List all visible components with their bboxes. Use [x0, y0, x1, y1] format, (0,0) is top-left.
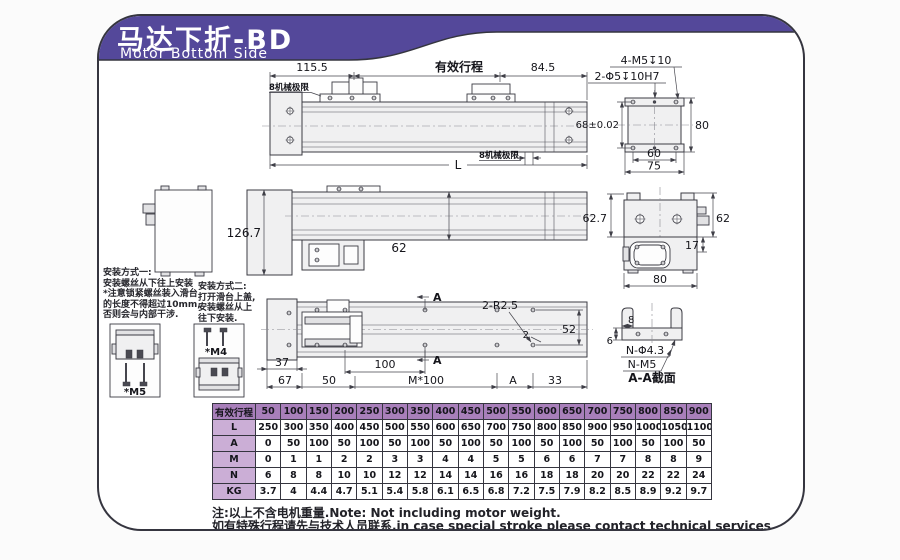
table-cell: 50 [534, 436, 559, 452]
table-header-cell: 250 [357, 404, 382, 420]
table-cell: 10 [331, 468, 356, 484]
table-cell: 16 [509, 468, 534, 484]
table-cell: 4.7 [331, 484, 356, 500]
section-caption: A-A截面 [628, 370, 676, 385]
dim-126-7: 126.7 [227, 226, 261, 240]
table-row-label: A [213, 436, 256, 452]
table-cell: 16 [483, 468, 508, 484]
table-cell: 50 [635, 436, 660, 452]
hole-callout: N-Φ4.3 [626, 344, 664, 357]
table-header-cell: 有效行程 [213, 404, 256, 420]
table-header-cell: 900 [686, 404, 711, 420]
table-cell: 5.1 [357, 484, 382, 500]
table-cell: 7 [610, 452, 635, 468]
table-header-cell: 450 [458, 404, 483, 420]
table-header-cell: 700 [585, 404, 610, 420]
install-method-1-title: 安装方式一: [103, 268, 201, 279]
table-cell: 14 [433, 468, 458, 484]
table-cell: 1050 [661, 420, 686, 436]
table-cell: 4 [281, 484, 306, 500]
install-method-1-text: 安装方式一: 安装螺丝从下往上安装 *注意锁紧螺丝装入滑台 的长度不得超过10m… [103, 268, 201, 321]
table-cell: 22 [661, 468, 686, 484]
table-cell: 9.7 [686, 484, 711, 500]
table-cell: 50 [382, 436, 407, 452]
table-cell: 4.4 [306, 484, 331, 500]
thread-callout-section: N-M5 [628, 358, 657, 371]
install-method-2-text: 安装方式二: 打开滑台上盖, 安装螺丝从上 往下安装. [198, 282, 255, 324]
mech-limit-label-bottom: 8机械极限 [479, 150, 519, 161]
page: { "banner": { "title": "马达下折-BD", "subti… [0, 0, 900, 560]
dim-37: 37 [275, 356, 289, 369]
dim-62-end: 62 [716, 212, 730, 225]
table-cell: 6.5 [458, 484, 483, 500]
table-row: L250300350400450500550600650700750800850… [213, 420, 712, 436]
section-arrow-label-bottom: A [433, 354, 442, 367]
table-cell: 100 [610, 436, 635, 452]
table-header-cell: 600 [534, 404, 559, 420]
corner-radius-callout: 2-R2.5 [482, 299, 518, 312]
table-row-label: L [213, 420, 256, 436]
section-arrow-label-top: A [433, 291, 442, 304]
dim-62-7: 62.7 [583, 212, 608, 225]
install-text-line: 打开滑台上盖, [198, 293, 255, 304]
table-cell: 8 [306, 468, 331, 484]
table-cell: 9 [686, 452, 711, 468]
table-cell: 950 [610, 420, 635, 436]
table-cell: 100 [661, 436, 686, 452]
table-row-label: M [213, 452, 256, 468]
table-cell: 7.2 [509, 484, 534, 500]
table-cell: 6 [559, 452, 584, 468]
table-cell: 6.8 [483, 484, 508, 500]
table-cell: 7.9 [559, 484, 584, 500]
table-row: KG3.744.44.75.15.45.86.16.56.87.27.57.98… [213, 484, 712, 500]
motor-end-view [143, 186, 212, 276]
table-cell: 3 [407, 452, 432, 468]
table-cell: 50 [483, 436, 508, 452]
section-aa-view: 8 6 N-Φ4.3 N-M5 A-A截面 [607, 303, 682, 385]
table-cell: 10 [357, 468, 382, 484]
table-header-cell: 750 [610, 404, 635, 420]
dim-2: 2 [523, 330, 529, 341]
table-cell: 0 [256, 436, 281, 452]
table-header-cell: 550 [509, 404, 534, 420]
mech-limit-label-top: 8机械极限 [269, 82, 309, 93]
table-cell: 500 [382, 420, 407, 436]
install-text-line: 否则会与内部干涉. [103, 310, 201, 321]
table-cell: 9.2 [661, 484, 686, 500]
table-cell: 700 [483, 420, 508, 436]
table-row-label: N [213, 468, 256, 484]
table-cell: 100 [458, 436, 483, 452]
table-cell: 12 [407, 468, 432, 484]
dim-84-5: 84.5 [531, 61, 556, 74]
table-cell: 5.8 [407, 484, 432, 500]
table-cell: 4 [433, 452, 458, 468]
table-cell: 50 [433, 436, 458, 452]
table-cell: 50 [585, 436, 610, 452]
dim-68: 68±0.02 [576, 120, 619, 131]
table-header-cell: 350 [407, 404, 432, 420]
table-cell: 400 [331, 420, 356, 436]
table-cell: 14 [458, 468, 483, 484]
dim-100: 100 [375, 358, 396, 371]
datasheet-card: 马达下折-BD Motor Bottom Side [97, 14, 805, 531]
m4-label: *M4 [205, 347, 227, 358]
dim-17: 17 [685, 239, 699, 252]
table-cell: 100 [357, 436, 382, 452]
table-cell: 3 [382, 452, 407, 468]
table-cell: 7.5 [534, 484, 559, 500]
end-view-motor-bottom: 62.7 62 17 80 [583, 187, 731, 289]
table-header-cell: 500 [483, 404, 508, 420]
table-header-cell: 150 [306, 404, 331, 420]
dim-80-bottom: 80 [653, 273, 667, 286]
table-cell: 5.4 [382, 484, 407, 500]
dim-a: A [509, 374, 517, 387]
install-text-line: 安装螺丝从下往上安装 [103, 279, 201, 290]
table-header-cell: 800 [635, 404, 660, 420]
dim-L: L [455, 158, 462, 172]
dim-50: 50 [322, 374, 336, 387]
table-cell: 2 [357, 452, 382, 468]
table-cell: 850 [559, 420, 584, 436]
install-text-line: *注意锁紧螺丝装入滑台 [103, 289, 201, 300]
table-cell: 100 [509, 436, 534, 452]
end-plate-view: 4-M5↧10 2-Φ5↧10H7 68±0.02 80 60 75 [576, 54, 709, 175]
table-cell: 3.7 [256, 484, 281, 500]
table-cell: 12 [382, 468, 407, 484]
table-cell: 100 [559, 436, 584, 452]
table-cell: 18 [559, 468, 584, 484]
table-cell: 20 [585, 468, 610, 484]
spec-table: 有效行程501001502002503003504004505005506006… [212, 403, 712, 500]
table-cell: 300 [281, 420, 306, 436]
table-cell: 250 [256, 420, 281, 436]
table-cell: 350 [306, 420, 331, 436]
table-cell: 8.9 [635, 484, 660, 500]
table-cell: 650 [458, 420, 483, 436]
table-header-row: 有效行程501001502002503003504004505005506006… [213, 404, 712, 420]
table-cell: 8.5 [610, 484, 635, 500]
thread-callout: 4-M5↧10 [621, 54, 672, 67]
table-cell: 1100 [686, 420, 711, 436]
dim-115-5: 115.5 [296, 61, 328, 74]
table-cell: 50 [281, 436, 306, 452]
table-cell: 5 [483, 452, 508, 468]
table-cell: 100 [407, 436, 432, 452]
side-view: 126.7 62 [227, 186, 593, 275]
table-header-cell: 850 [661, 404, 686, 420]
table-cell: 8 [661, 452, 686, 468]
m5-label: *M5 [124, 387, 146, 398]
dim-62-side: 62 [391, 241, 406, 255]
table-cell: 800 [534, 420, 559, 436]
dim-52: 52 [562, 323, 576, 336]
table-cell: 2 [331, 452, 356, 468]
dim-75: 75 [647, 160, 661, 173]
table-header-cell: 100 [281, 404, 306, 420]
dim-8: 8 [628, 315, 634, 326]
table-cell: 550 [407, 420, 432, 436]
table-cell: 6 [256, 468, 281, 484]
table-cell: 1 [306, 452, 331, 468]
table-row: N688101012121414161618182020222224 [213, 468, 712, 484]
dim-60: 60 [647, 147, 661, 160]
table-cell: 0 [256, 452, 281, 468]
table-cell: 5 [509, 452, 534, 468]
table-cell: 1 [281, 452, 306, 468]
table-row-label: KG [213, 484, 256, 500]
note-line-2: 如有特殊行程请先与技术人员联系.in case special stroke p… [212, 517, 776, 531]
table-header-cell: 650 [559, 404, 584, 420]
install-text-line: 往下安装. [198, 314, 255, 325]
dowel-callout: 2-Φ5↧10H7 [594, 70, 659, 83]
top-view: 115.5 有效行程 84.5 8机械极限 8机械极限 L [262, 59, 595, 172]
table-cell: 100 [306, 436, 331, 452]
table-header-cell: 200 [331, 404, 356, 420]
table-header-cell: 50 [256, 404, 281, 420]
install-method-2-figure: *M4 [194, 324, 244, 397]
table-cell: 900 [585, 420, 610, 436]
table-cell: 8 [635, 452, 660, 468]
table-cell: 24 [686, 468, 711, 484]
effective-stroke-label: 有效行程 [435, 59, 483, 74]
table-cell: 750 [509, 420, 534, 436]
install-method-2-title: 安装方式二: [198, 282, 255, 293]
table-cell: 18 [534, 468, 559, 484]
dim-80: 80 [695, 119, 709, 132]
dim-67: 67 [278, 374, 292, 387]
table-header-cell: 400 [433, 404, 458, 420]
table-row: M011223344556677889 [213, 452, 712, 468]
table-cell: 6 [534, 452, 559, 468]
table-cell: 600 [433, 420, 458, 436]
dim-m100: M*100 [408, 374, 444, 387]
install-text-line: 安装螺丝从上 [198, 303, 255, 314]
table-cell: 8 [281, 468, 306, 484]
table-cell: 8.2 [585, 484, 610, 500]
table-cell: 4 [458, 452, 483, 468]
table-cell: 6.1 [433, 484, 458, 500]
table-cell: 450 [357, 420, 382, 436]
dim-6: 6 [607, 336, 613, 347]
dim-33: 33 [548, 374, 562, 387]
table-cell: 1000 [635, 420, 660, 436]
table-header-cell: 300 [382, 404, 407, 420]
table-cell: 22 [635, 468, 660, 484]
table-cell: 7 [585, 452, 610, 468]
table-cell: 50 [331, 436, 356, 452]
table-cell: 50 [686, 436, 711, 452]
table-cell: 20 [610, 468, 635, 484]
install-text-line: 的长度不得超过10mm, [103, 300, 201, 311]
install-method-1-figure: *M5 [110, 324, 160, 398]
table-row: A050100501005010050100501005010050100501… [213, 436, 712, 452]
bottom-view: 2-R2.5 52 2 A A 37 100 [257, 291, 593, 389]
